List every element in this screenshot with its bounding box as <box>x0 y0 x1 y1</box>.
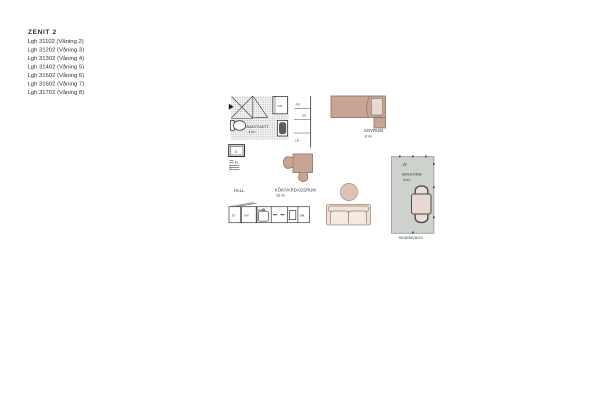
svg-text:SKÄRMVÄGG: SKÄRMVÄGG <box>399 236 424 240</box>
svg-text:ZENIT 2: ZENIT 2 <box>28 29 57 36</box>
svg-text:DM: DM <box>300 213 305 217</box>
svg-text:KÖK/VARDAGSRUM: KÖK/VARDAGSRUM <box>275 187 317 192</box>
svg-text:K/F: K/F <box>244 213 249 217</box>
svg-text:Lgh 31702 (Våning 8): Lgh 31702 (Våning 8) <box>28 89 85 96</box>
svg-text:Lgh 31102 (Våning 2): Lgh 31102 (Våning 2) <box>28 38 84 45</box>
svg-text:Lgh 31202 (Våning 3): Lgh 31202 (Våning 3) <box>28 47 85 54</box>
svg-text:BALKONG: BALKONG <box>402 171 422 176</box>
svg-text:BAD/TVÄTT: BAD/TVÄTT <box>247 124 270 129</box>
svg-text:6 m²: 6 m² <box>404 178 412 182</box>
svg-text:16 m²: 16 m² <box>276 194 286 198</box>
svg-text:Lgh 31402 (Våning 5): Lgh 31402 (Våning 5) <box>28 64 85 71</box>
svg-text:ST: ST <box>232 213 236 217</box>
svg-text:SG: SG <box>302 114 307 118</box>
svg-text:G: G <box>235 150 238 154</box>
svg-text:Lgh 31502 (Våning 6): Lgh 31502 (Våning 6) <box>28 72 85 79</box>
svg-text:8 m²: 8 m² <box>365 134 373 138</box>
svg-text:LB: LB <box>295 139 299 143</box>
svg-text:HALL: HALL <box>234 188 245 193</box>
svg-text:Lgh 31602 (Våning 7): Lgh 31602 (Våning 7) <box>28 81 85 88</box>
svg-text:KM: KM <box>278 104 283 108</box>
svg-text:4 m²: 4 m² <box>249 130 257 134</box>
svg-text:EL: EL <box>235 161 239 165</box>
svg-text:PS: PS <box>296 103 300 107</box>
svg-text:Lgh 31302 (Våning 4): Lgh 31302 (Våning 4) <box>28 55 85 62</box>
svg-text:SOVRUM: SOVRUM <box>364 128 383 133</box>
